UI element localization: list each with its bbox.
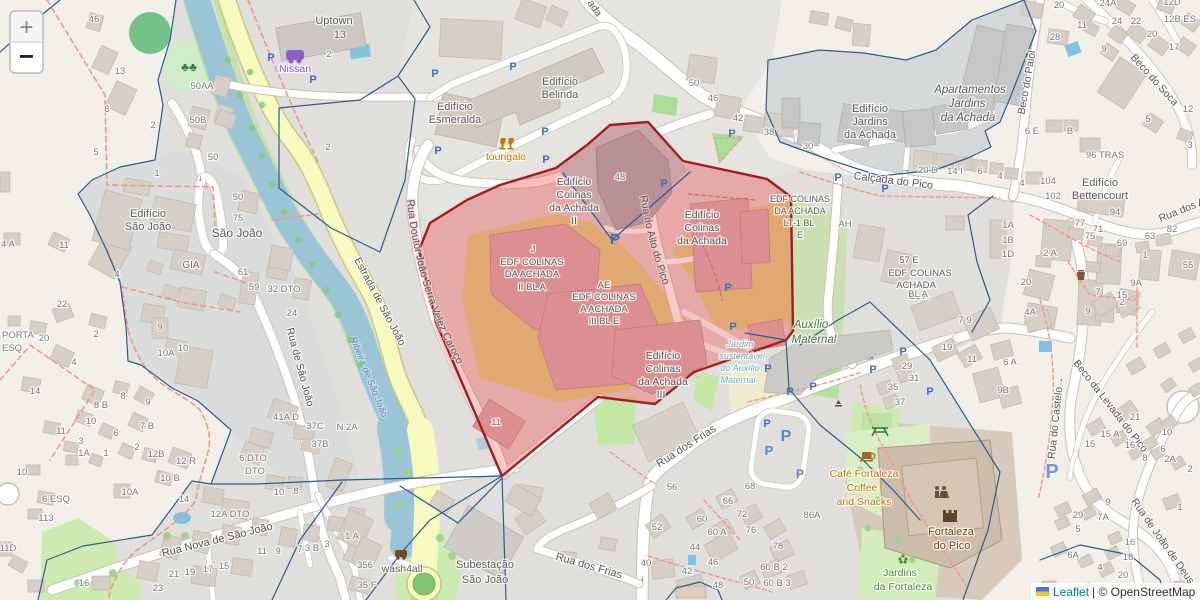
svg-text:9A: 9A: [1130, 278, 1142, 289]
svg-text:7: 7: [297, 544, 302, 555]
svg-text:37C: 37C: [306, 421, 324, 432]
svg-text:São João: São João: [462, 574, 508, 586]
svg-text:III: III: [657, 389, 666, 401]
svg-text:P: P: [1045, 461, 1058, 483]
svg-text:P: P: [660, 178, 667, 190]
svg-text:da Achada: da Achada: [844, 129, 897, 141]
svg-text:−: −: [19, 41, 34, 71]
svg-text:44: 44: [690, 542, 701, 553]
svg-text:P: P: [899, 346, 906, 358]
svg-text:Edifício: Edifício: [685, 209, 720, 221]
svg-text:15: 15: [1117, 290, 1128, 301]
svg-text:E: E: [797, 230, 803, 240]
svg-text:7: 7: [1095, 287, 1100, 298]
svg-text:P: P: [926, 386, 933, 398]
svg-text:4: 4: [1097, 562, 1102, 573]
svg-text:4: 4: [71, 357, 76, 368]
svg-text:EDF COLINAS: EDF COLINAS: [888, 268, 951, 279]
svg-text:8: 8: [120, 391, 125, 402]
svg-text:42: 42: [733, 113, 744, 124]
svg-text:P: P: [542, 154, 549, 166]
svg-text:21: 21: [169, 569, 180, 580]
svg-text:9: 9: [1085, 306, 1090, 317]
svg-text:6A: 6A: [1067, 550, 1079, 561]
svg-text:16: 16: [79, 578, 90, 589]
svg-text:2: 2: [326, 49, 331, 60]
svg-text:P: P: [729, 321, 736, 333]
svg-text:Colinas: Colinas: [645, 363, 680, 375]
svg-text:10: 10: [17, 467, 28, 478]
svg-text:12B ES: 12B ES: [1164, 14, 1196, 25]
svg-text:Edifício: Edifício: [646, 350, 681, 362]
svg-text:69: 69: [1117, 238, 1128, 249]
svg-text:10: 10: [1162, 427, 1173, 438]
svg-text:14 I: 14 I: [947, 166, 963, 177]
svg-text:Café Fortaleza: Café Fortaleza: [830, 468, 899, 480]
svg-text:Edifício: Edifício: [130, 208, 166, 220]
svg-text:♣♣: ♣♣: [181, 60, 197, 74]
svg-text:+: +: [19, 14, 33, 41]
svg-text:63: 63: [1145, 231, 1156, 242]
svg-text:94: 94: [1110, 207, 1121, 218]
svg-text:11: 11: [1077, 20, 1087, 31]
svg-text:60: 60: [697, 514, 708, 525]
svg-text:42: 42: [682, 566, 693, 577]
svg-text:50: 50: [208, 152, 219, 163]
svg-text:5: 5: [93, 147, 98, 158]
svg-text:da Achada: da Achada: [677, 235, 727, 247]
svg-text:24: 24: [287, 308, 298, 319]
svg-text:Belinda: Belinda: [542, 89, 580, 101]
svg-text:Leaflet: Leaflet: [1053, 585, 1090, 599]
svg-text:10 B: 10 B: [160, 473, 180, 484]
svg-text:EDF COLINAS: EDF COLINAS: [770, 194, 830, 204]
svg-text:14: 14: [30, 386, 41, 397]
svg-text:57 E: 57 E: [899, 255, 919, 266]
svg-text:3: 3: [78, 436, 83, 447]
svg-text:11: 11: [491, 417, 501, 428]
svg-text:P: P: [809, 381, 816, 393]
svg-text:6: 6: [113, 428, 118, 439]
svg-text:22: 22: [57, 299, 68, 310]
svg-text:29: 29: [902, 361, 913, 372]
svg-text:20: 20: [1118, 570, 1129, 581]
svg-text:35: 35: [888, 382, 899, 393]
svg-text:P: P: [509, 61, 516, 73]
svg-text:23: 23: [153, 583, 164, 594]
svg-text:8 B: 8 B: [94, 400, 108, 411]
svg-text:DTO: DTO: [245, 466, 265, 477]
svg-text:1D: 1D: [1002, 249, 1014, 260]
svg-text:24: 24: [1112, 16, 1123, 27]
svg-text:14: 14: [179, 494, 190, 505]
svg-text:EDF COLINAS: EDF COLINAS: [572, 292, 635, 303]
svg-text:35 F: 35 F: [357, 580, 376, 591]
svg-text:tourigalo: tourigalo: [486, 151, 526, 163]
svg-text:GIA: GIA: [182, 260, 200, 271]
svg-text:113: 113: [38, 513, 53, 524]
svg-text:50: 50: [744, 577, 755, 588]
svg-text:Apartamentos: Apartamentos: [933, 84, 1006, 96]
svg-text:2 A: 2 A: [1043, 248, 1057, 259]
svg-text:Edifício: Edifício: [1082, 177, 1118, 189]
svg-text:10A: 10A: [122, 487, 140, 498]
svg-text:4: 4: [997, 171, 1002, 182]
svg-text:Subestação: Subestação: [456, 559, 514, 571]
svg-text:11: 11: [59, 240, 69, 251]
svg-text:20 D: 20 D: [918, 165, 938, 176]
svg-text:LT-1 BL: LT-1 BL: [784, 218, 815, 228]
svg-text:P: P: [763, 418, 770, 430]
svg-text:50: 50: [689, 78, 700, 89]
svg-text:11D: 11D: [0, 543, 16, 554]
svg-text:46: 46: [89, 14, 100, 25]
svg-text:Colinas: Colinas: [684, 222, 719, 234]
svg-text:N 2A: N 2A: [336, 422, 358, 433]
svg-text:72: 72: [737, 509, 748, 520]
svg-text:Edifício: Edifício: [542, 76, 578, 88]
svg-text:6: 6: [104, 104, 109, 115]
svg-text:50: 50: [233, 192, 244, 203]
svg-text:P: P: [796, 467, 804, 481]
svg-text:13: 13: [334, 29, 346, 41]
svg-text:6 DTO: 6 DTO: [239, 453, 267, 464]
svg-text:do Auxílio: do Auxílio: [720, 363, 759, 373]
svg-text:P: P: [610, 231, 620, 248]
svg-text:4A: 4A: [1024, 307, 1036, 318]
svg-text:9B: 9B: [997, 385, 1009, 396]
svg-text:do Pico: do Pico: [934, 540, 971, 552]
svg-text:11: 11: [56, 426, 66, 437]
svg-text:75: 75: [233, 213, 244, 224]
svg-text:AH: AH: [838, 219, 851, 230]
svg-text:2: 2: [325, 142, 330, 153]
svg-text:8: 8: [293, 486, 298, 497]
svg-text:1: 1: [1177, 502, 1182, 513]
svg-text:46: 46: [708, 557, 719, 568]
svg-text:P: P: [267, 52, 274, 64]
svg-text:P: P: [431, 68, 438, 80]
svg-text:→: →: [900, 163, 911, 174]
svg-text:32 DTO: 32 DTO: [267, 284, 300, 295]
svg-text:9: 9: [157, 322, 162, 333]
svg-text:76: 76: [746, 525, 757, 536]
svg-text:Jardins: Jardins: [852, 116, 888, 128]
svg-text:1: 1: [1142, 250, 1147, 261]
svg-text:68: 68: [745, 481, 756, 492]
svg-text:Uptown: Uptown: [315, 15, 352, 27]
svg-text:2A: 2A: [1164, 454, 1176, 465]
svg-text:20: 20: [1147, 29, 1158, 40]
svg-text:61: 61: [238, 267, 249, 278]
svg-text:P: P: [724, 282, 731, 294]
svg-text:22: 22: [1131, 16, 1142, 27]
svg-text:Auxílio: Auxílio: [793, 319, 829, 331]
svg-text:II: II: [571, 215, 577, 227]
svg-text:7A: 7A: [1097, 512, 1109, 523]
svg-text:19: 19: [942, 342, 953, 353]
svg-text:15: 15: [1085, 439, 1096, 450]
svg-text:2: 2: [93, 329, 98, 340]
svg-text:AE: AE: [598, 280, 611, 291]
svg-text:7 B: 7 B: [140, 421, 154, 432]
svg-text:15: 15: [219, 561, 230, 572]
svg-text:4: 4: [114, 269, 119, 280]
svg-text:4 A: 4 A: [1, 239, 15, 250]
svg-text:41A D: 41A D: [273, 412, 299, 423]
svg-text:São João: São João: [212, 226, 263, 240]
svg-text:29: 29: [1073, 510, 1084, 521]
svg-text:77: 77: [1075, 218, 1086, 229]
svg-text:Edifício: Edifício: [557, 176, 592, 188]
svg-text:9: 9: [145, 397, 150, 408]
svg-text:da Fortaleza: da Fortaleza: [874, 581, 933, 593]
svg-text:J: J: [531, 244, 536, 255]
svg-text:da Achada: da Achada: [941, 112, 996, 124]
svg-text:55: 55: [1183, 260, 1194, 271]
svg-text:Fortaleza: Fortaleza: [928, 526, 975, 538]
svg-text:P: P: [786, 386, 793, 398]
svg-text:20: 20: [1054, 0, 1065, 11]
svg-text:DA ACHADA: DA ACHADA: [774, 206, 826, 216]
svg-text:66: 66: [723, 496, 734, 507]
svg-text:96 TRAS: 96 TRAS: [1086, 150, 1124, 161]
svg-text:9: 9: [1105, 497, 1110, 508]
svg-text:1A: 1A: [78, 448, 90, 459]
svg-text:60 B 2: 60 B 2: [760, 562, 787, 573]
svg-text:BL A: BL A: [908, 289, 928, 300]
svg-text:6 ESQ: 6 ESQ: [42, 494, 70, 505]
svg-text:P: P: [834, 172, 841, 184]
svg-text:86A: 86A: [804, 510, 822, 521]
svg-text:Coffee: Coffee: [847, 482, 878, 494]
svg-text:17: 17: [1169, 42, 1180, 53]
svg-text:Nissan: Nissan: [279, 63, 311, 75]
svg-text:12D: 12D: [1163, 0, 1181, 8]
svg-text:ESQ: ESQ: [2, 343, 22, 354]
svg-text:60 B 3: 60 B 3: [763, 578, 790, 589]
svg-text:6 A: 6 A: [1003, 357, 1017, 368]
svg-text:12B: 12B: [148, 449, 165, 460]
svg-text:1B: 1B: [1002, 235, 1014, 246]
svg-text:Edifício: Edifício: [437, 101, 473, 113]
svg-text:da Achada: da Achada: [638, 376, 688, 388]
svg-text:→: →: [639, 574, 649, 583]
svg-text:B: B: [1067, 126, 1073, 137]
svg-text:1: 1: [103, 448, 108, 459]
svg-text:24A: 24A: [1100, 0, 1118, 9]
svg-text:Maternal: Maternal: [792, 334, 837, 346]
svg-text:P: P: [764, 363, 771, 375]
svg-text:20: 20: [1021, 277, 1032, 288]
svg-text:11: 11: [257, 546, 267, 557]
svg-text:7 9: 7 9: [958, 315, 971, 326]
svg-text:48: 48: [713, 580, 724, 591]
svg-text:Edifício: Edifício: [852, 103, 888, 115]
svg-text:II BL A: II BL A: [518, 282, 546, 293]
svg-text:A ACHADA: A ACHADA: [580, 304, 628, 315]
svg-text:DA ACHADA: DA ACHADA: [505, 269, 560, 280]
svg-text:2: 2: [134, 442, 139, 453]
svg-text:78: 78: [773, 541, 784, 552]
svg-text:46: 46: [708, 93, 719, 104]
svg-text:sustentável: sustentável: [719, 351, 766, 361]
svg-text:17: 17: [203, 564, 214, 575]
svg-text:Esmeralda: Esmeralda: [429, 114, 482, 126]
svg-text:1: 1: [154, 168, 159, 179]
svg-text:1A: 1A: [1002, 220, 1014, 231]
svg-text:Jardim: Jardim: [725, 339, 754, 349]
svg-text:4: 4: [1019, 178, 1024, 189]
svg-text:20: 20: [39, 333, 50, 344]
svg-text:8: 8: [1142, 453, 1147, 464]
svg-text:12A DTO: 12A DTO: [211, 509, 250, 520]
svg-text:3: 3: [324, 539, 329, 550]
svg-text:13: 13: [115, 66, 126, 77]
svg-text:1 A: 1 A: [345, 531, 359, 542]
svg-text:Colinas: Colinas: [556, 189, 591, 201]
svg-text:16: 16: [1125, 537, 1136, 548]
svg-text:59: 59: [249, 282, 260, 293]
svg-text:P: P: [541, 126, 548, 138]
svg-text:16: 16: [1125, 440, 1136, 451]
svg-text:15 A: 15 A: [1100, 429, 1120, 440]
svg-text:9: 9: [275, 546, 280, 557]
svg-text:and Snacks: and Snacks: [837, 496, 892, 508]
svg-text:18: 18: [1123, 552, 1134, 563]
svg-text:102: 102: [1045, 191, 1061, 202]
svg-text:P: P: [728, 128, 735, 140]
svg-text:60 A: 60 A: [707, 527, 727, 538]
svg-text:10: 10: [86, 416, 97, 427]
svg-text:50AA: 50AA: [190, 81, 214, 92]
svg-text:38: 38: [764, 127, 775, 138]
svg-text:56: 56: [667, 482, 678, 493]
svg-text:11: 11: [967, 354, 977, 365]
svg-text:P: P: [869, 364, 876, 376]
svg-text:III BL E: III BL E: [589, 316, 620, 327]
svg-text:52: 52: [652, 522, 663, 533]
svg-text:P: P: [434, 145, 441, 157]
svg-text:São João: São João: [125, 221, 171, 233]
svg-text:356: 356: [357, 560, 373, 571]
svg-text:12 R: 12 R: [176, 456, 196, 467]
svg-text:19: 19: [185, 567, 196, 578]
svg-text:10A: 10A: [158, 348, 176, 359]
svg-text:PORTA: PORTA: [2, 330, 35, 341]
svg-text:48: 48: [615, 172, 626, 183]
svg-text:wash4all: wash4all: [381, 563, 423, 575]
svg-text:Jardins: Jardins: [883, 567, 917, 579]
svg-text:31: 31: [909, 373, 920, 384]
svg-text:6 E: 6 E: [1025, 126, 1039, 137]
svg-text:28: 28: [1050, 32, 1061, 43]
svg-text:9: 9: [1101, 44, 1106, 55]
svg-text:Maternal: Maternal: [720, 375, 756, 385]
svg-text:75: 75: [1085, 231, 1096, 242]
svg-text:da Achada: da Achada: [549, 202, 599, 214]
svg-text:6: 6: [977, 166, 982, 177]
svg-text:37: 37: [895, 397, 906, 408]
svg-text:5: 5: [1075, 524, 1080, 535]
svg-text:10: 10: [178, 343, 189, 354]
svg-text:12: 12: [1183, 104, 1194, 115]
svg-text:10: 10: [274, 487, 285, 498]
svg-text:Jardins: Jardins: [947, 98, 985, 110]
svg-text:Bettencourt: Bettencourt: [1072, 190, 1128, 202]
svg-text:P: P: [781, 428, 792, 445]
svg-text:3: 3: [1187, 140, 1192, 151]
svg-text:5: 5: [1145, 114, 1150, 125]
svg-text:40: 40: [641, 558, 652, 569]
svg-text:82: 82: [1167, 224, 1178, 235]
svg-text:21: 21: [1130, 412, 1141, 423]
svg-text:| © OpenStreetMap: | © OpenStreetMap: [1092, 585, 1196, 599]
svg-text:50B: 50B: [190, 115, 207, 126]
svg-text:2: 2: [150, 120, 155, 131]
svg-text:P: P: [309, 74, 316, 86]
svg-text:104: 104: [1040, 176, 1056, 187]
svg-text:P: P: [765, 443, 774, 458]
svg-text:2: 2: [1187, 464, 1192, 475]
svg-text:37B: 37B: [312, 439, 329, 450]
svg-text:30: 30: [803, 141, 814, 152]
svg-text:EDF COLINAS: EDF COLINAS: [500, 257, 563, 268]
svg-text:→: →: [196, 173, 207, 184]
svg-text:3 B: 3 B: [305, 543, 319, 554]
